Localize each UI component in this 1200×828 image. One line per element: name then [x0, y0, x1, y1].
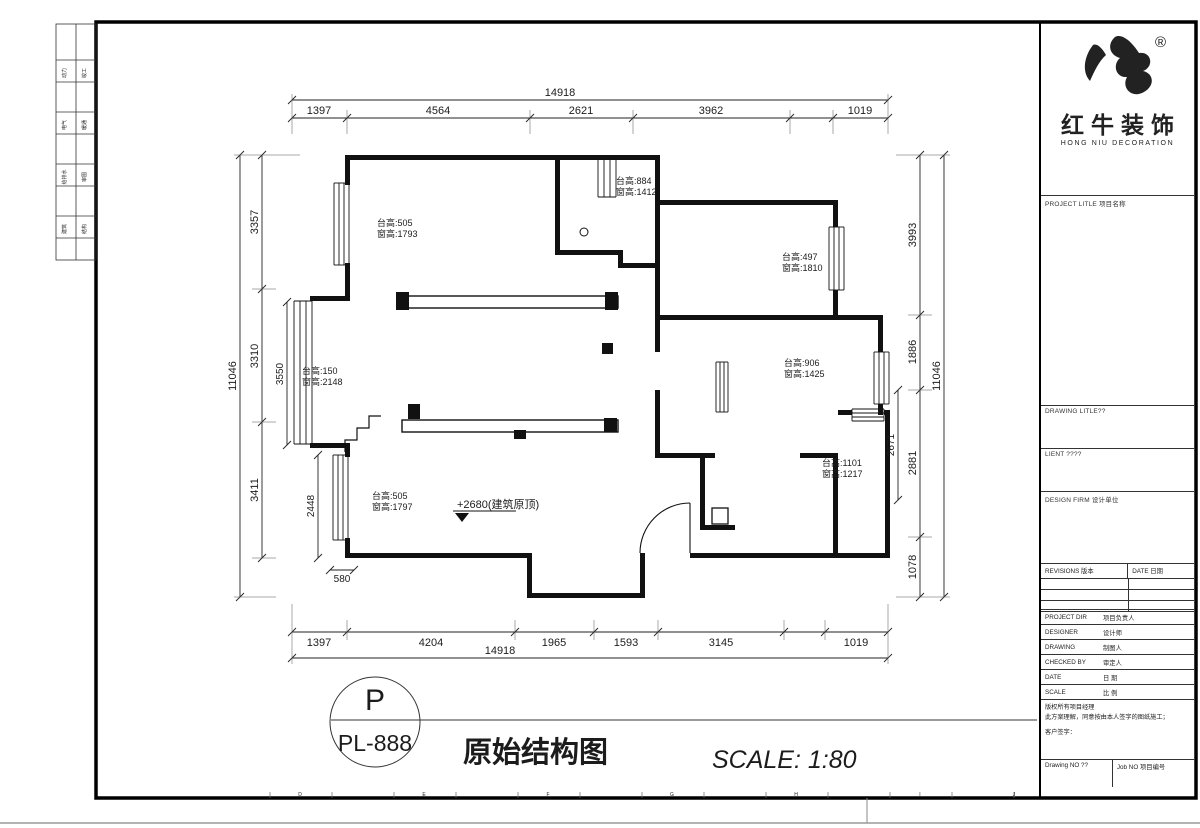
design-firm-section: DESIGN FIRM 设计单位	[1041, 492, 1194, 564]
strip-label: 结构	[81, 224, 88, 234]
row-label: CHECKED BY	[1045, 659, 1103, 666]
revision-row	[1041, 601, 1194, 612]
row-value: 审定人	[1103, 658, 1122, 667]
drawing-title: 原始结构图	[463, 736, 608, 769]
copyright-line1: 版权所有项目经理	[1045, 703, 1190, 713]
note-l1: 台高:884	[616, 175, 652, 186]
row-label: DATE	[1045, 674, 1103, 681]
revisions-date-header: DATE 日期	[1128, 564, 1167, 578]
row-scale: SCALE 比 例	[1041, 685, 1194, 700]
dim-top-total: 14918	[545, 87, 576, 99]
beams-and-columns	[396, 228, 728, 524]
drawing-no-label: Drawing NO ??	[1041, 760, 1113, 787]
dim-bottom-1: 4204	[419, 637, 443, 649]
strip-label: 电气	[61, 120, 68, 130]
copyright-line2: 此方案理解，同意按由本人签字的图纸施工；	[1045, 713, 1190, 723]
sheet-frame	[96, 22, 1196, 798]
ruler-letter: D	[298, 792, 302, 798]
detail-circle-letter: P	[365, 684, 385, 717]
note-l2: 窗高:1797	[372, 501, 413, 512]
dim-bottom-3: 1593	[614, 637, 638, 649]
ruler-letter: H	[794, 792, 798, 798]
client-label: LIENT ????	[1045, 451, 1190, 458]
window-symbols	[294, 157, 889, 540]
dim-top-2: 2621	[569, 105, 593, 117]
row-drawing: DRAWING 制图人	[1041, 640, 1194, 655]
project-title-label: PROJECT LITLE 项目名称	[1045, 198, 1190, 208]
revision-row	[1041, 579, 1194, 590]
project-title-section: PROJECT LITLE 项目名称	[1041, 196, 1194, 406]
brand-subtitle: HONG NIU DECORATION	[1041, 140, 1194, 147]
note-l2: 窗高:1412	[616, 186, 657, 197]
row-label: SCALE	[1045, 689, 1103, 696]
dim-left-total: 11046	[227, 361, 239, 391]
hongniu-bull-logo: ®	[1063, 31, 1173, 109]
row-project-dir: PROJECT DIR 项目负责人	[1041, 610, 1194, 625]
window-top-niche	[598, 157, 616, 197]
dim-top-4: 1019	[848, 105, 872, 117]
ruler-letter: I	[919, 792, 920, 798]
row-date: DATE 日 期	[1041, 670, 1194, 685]
client-section: LIENT ????	[1041, 449, 1194, 492]
note-l2: 窗高:1810	[782, 262, 823, 273]
row-value: 日 期	[1103, 673, 1117, 682]
dim-bottom-total: 14918	[485, 645, 516, 657]
footer-titlebar: P PL-888 原始结构图 SCALE: 1:80	[330, 677, 1037, 774]
window-interior	[716, 362, 728, 412]
dim-top-0: 1397	[307, 105, 331, 117]
note-l2: 窗高:1425	[784, 368, 825, 379]
revisions-table: REVISIONS 版本 DATE 日期	[1041, 564, 1194, 610]
window-right-mid	[874, 352, 889, 404]
copyright-section: 版权所有项目经理 此方案理解，同意按由本人签字的图纸施工； 客户签字：	[1041, 700, 1194, 760]
discipline-strip-labels: 动力 竣工 电气 暖通 给排水 审图 建筑 结构	[61, 68, 88, 234]
dim-right-0: 3993	[907, 223, 919, 247]
dim-top-3: 3962	[699, 105, 723, 117]
dim-right-2: 2881	[907, 451, 919, 475]
brand-name: 红牛装饰	[1048, 114, 1194, 137]
dim-left-2: 3411	[249, 478, 261, 502]
row-label: PROJECT DIR	[1045, 614, 1103, 621]
dim-left-0: 3357	[249, 210, 261, 234]
detail-circle-code: PL-888	[338, 730, 412, 756]
note-l1: 台高:906	[784, 357, 820, 368]
window-left-lower	[333, 455, 348, 540]
row-value: 比 例	[1103, 688, 1117, 697]
row-value: 项目负责人	[1103, 613, 1134, 622]
note-l2: 窗高:1217	[822, 468, 863, 479]
revisions-header: REVISIONS 版本	[1041, 564, 1128, 578]
row-value: 制图人	[1103, 643, 1122, 652]
dim-bottom-5: 1019	[844, 637, 868, 649]
job-no-label: Job NO 项目编号	[1113, 760, 1169, 787]
dim-left-1: 3310	[249, 344, 261, 368]
note-l2: 窗高:1793	[377, 228, 418, 239]
dim-inner-3550: 3550	[275, 362, 286, 385]
row-label: DRAWING	[1045, 644, 1103, 651]
strip-label: 动力	[61, 68, 68, 78]
level-note-text: +2680(建筑原顶)	[457, 497, 539, 511]
dim-right-total: 11046	[931, 361, 943, 391]
note-l1: 台高:505	[377, 217, 413, 228]
row-value: 设计师	[1103, 628, 1122, 637]
dim-inner-2671: 2671	[886, 433, 897, 456]
drawing-title-label: DRAWING LITLE??	[1045, 408, 1190, 415]
dim-bottom-2: 1965	[542, 637, 566, 649]
ruler-letter: G	[670, 792, 674, 798]
note-l1: 台高:497	[782, 251, 818, 262]
entry-door	[640, 503, 690, 553]
dim-inner-2448: 2448	[306, 494, 317, 517]
revision-row	[1041, 590, 1194, 601]
note-l2: 窗高:2148	[302, 376, 343, 387]
title-block: ® 红牛装饰 HONG NIU DECORATION PROJECT LITLE…	[1041, 23, 1194, 797]
scale-label: SCALE: 1:80	[712, 746, 857, 774]
strip-label: 审图	[81, 172, 88, 182]
window-right-upper	[829, 227, 844, 290]
drawing-canvas: 动力 竣工 电气 暖通 给排水 审图 建筑 结构 D E F G H I J	[0, 0, 1200, 828]
customer-sign-label: 客户签字：	[1045, 728, 1190, 738]
note-l1: 台高:1101	[822, 457, 862, 468]
row-checked-by: CHECKED BY 审定人	[1041, 655, 1194, 670]
level-note: +2680(建筑原顶)	[453, 497, 539, 522]
strip-label: 暖通	[81, 120, 88, 130]
window-left-upper	[334, 183, 349, 265]
stair-detail	[345, 416, 381, 452]
dim-bottom-0: 1397	[307, 637, 331, 649]
dim-inner-580: 580	[334, 574, 351, 585]
sheet: { "plan": { "dims": { "top_total": "1491…	[0, 0, 1200, 828]
row-designer: DESIGNER 设计师	[1041, 625, 1194, 640]
note-l1: 台高:150	[302, 365, 338, 376]
logo-section: ® 红牛装饰 HONG NIU DECORATION	[1041, 23, 1194, 196]
strip-label: 给排水	[61, 169, 68, 184]
registered-mark: ®	[1155, 34, 1166, 51]
dim-right-3: 1078	[907, 555, 919, 579]
room-notes: 台高:505 窗高:1793 台高:884 窗高:1412 台高:497 窗高:…	[302, 175, 863, 512]
note-l1: 台高:505	[372, 490, 408, 501]
dim-bottom-4: 3145	[709, 637, 733, 649]
strip-label: 竣工	[81, 68, 88, 78]
strip-label: 建筑	[61, 224, 68, 234]
design-firm-label: DESIGN FIRM 设计单位	[1045, 494, 1190, 504]
ruler-letter: F	[546, 792, 549, 798]
row-label: DESIGNER	[1045, 629, 1103, 636]
fold-marks	[0, 798, 1200, 823]
number-row: Drawing NO ?? Job NO 项目编号	[1041, 760, 1194, 787]
dim-top-1: 4564	[426, 105, 450, 117]
drawing-title-section: DRAWING LITLE??	[1041, 406, 1194, 449]
dim-right-1: 1886	[907, 340, 919, 364]
